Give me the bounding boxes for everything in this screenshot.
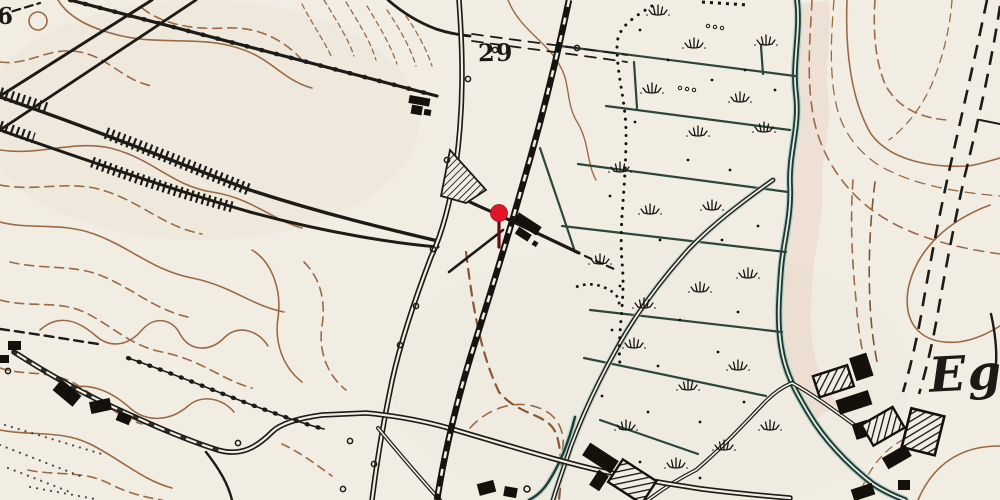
parcel-number-label: 29 (478, 41, 514, 66)
pin-icon (486, 200, 514, 252)
elevation-number-label: 6 (0, 5, 13, 28)
place-name-label: Eg (928, 348, 1000, 400)
red-location-pin[interactable] (486, 200, 514, 252)
pin-head (491, 205, 508, 222)
map-canvas[interactable]: 29 6 Eg (0, 0, 1000, 500)
